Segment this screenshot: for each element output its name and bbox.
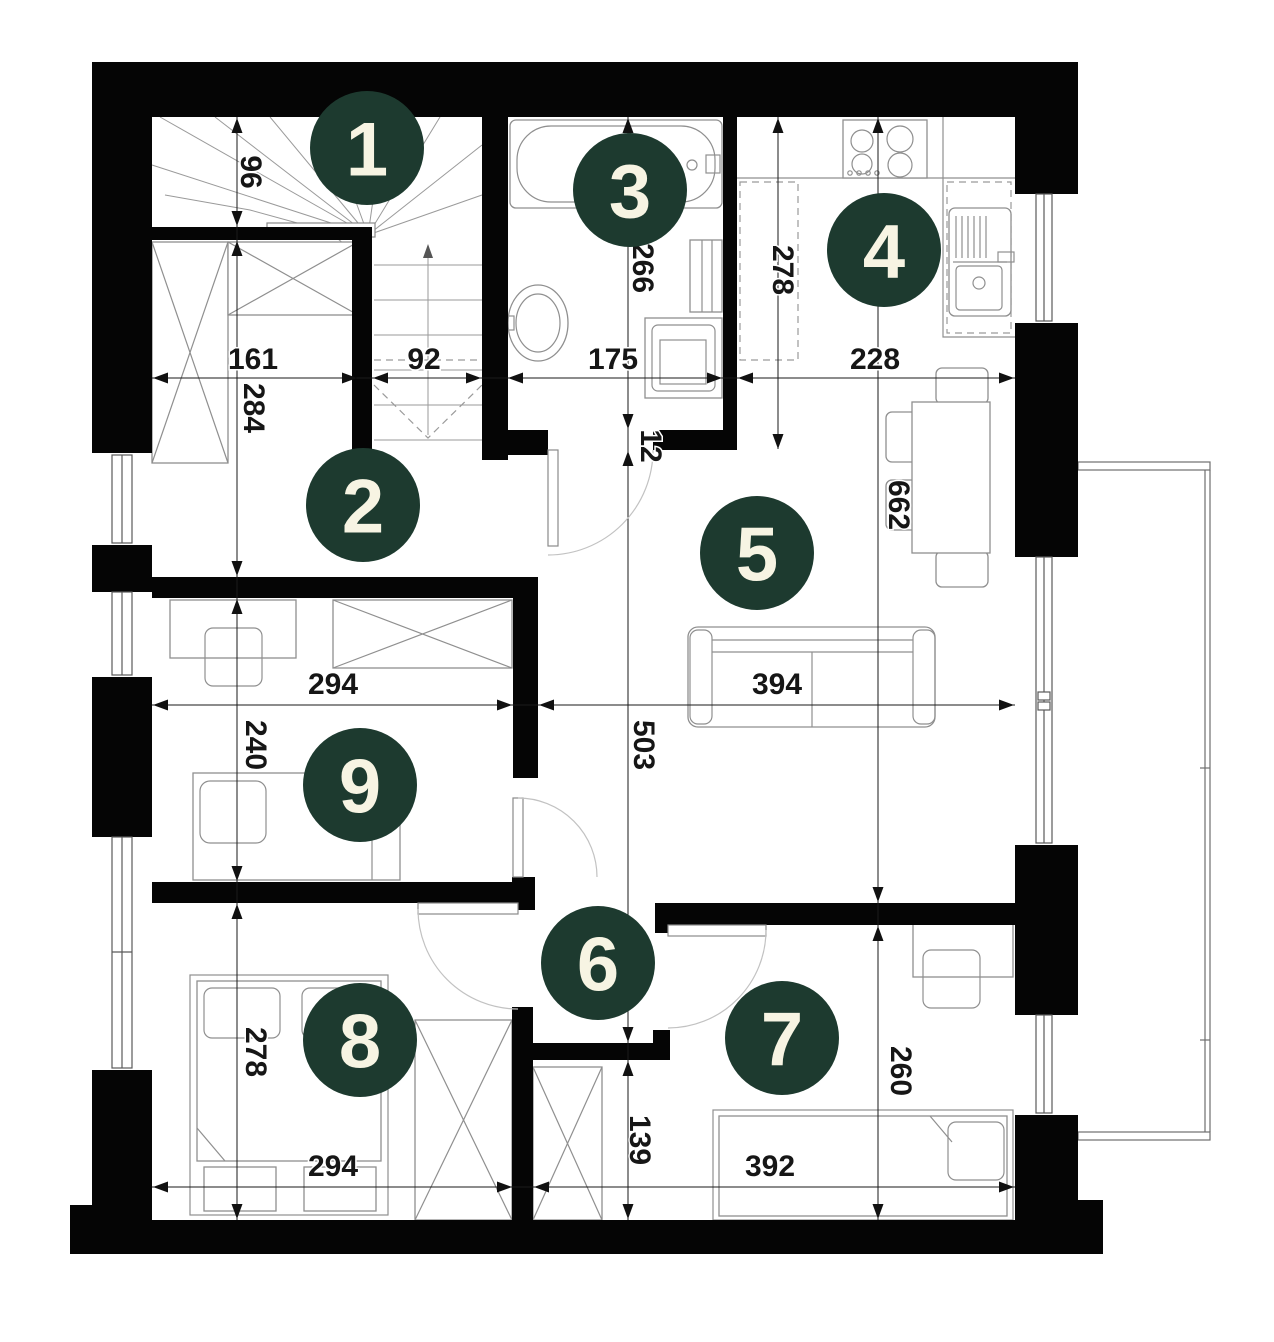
room-marker-6: 6: [541, 906, 655, 1020]
room-marker-number: 5: [736, 512, 778, 597]
dimension-label: 161: [228, 343, 278, 376]
radiator: [690, 240, 722, 312]
dimension-label: 278: [766, 245, 799, 295]
room-marker-number: 1: [346, 107, 388, 192]
dimension-label: 294: [308, 668, 358, 701]
dimension-label: 392: [745, 1150, 795, 1183]
dimension-label: 228: [850, 343, 900, 376]
wardrobe-tall: [152, 242, 228, 463]
room-marker-3: 3: [573, 133, 687, 247]
room-marker-number: 8: [339, 999, 381, 1084]
balcony-door: [1036, 557, 1052, 843]
window-left-1: [112, 455, 132, 543]
dimension-label: 260: [884, 1046, 917, 1096]
wardrobe-hall6: [533, 1067, 602, 1220]
dimension-label: 394: [752, 668, 802, 701]
dimension-label: 12: [634, 429, 667, 462]
room-marker-4: 4: [827, 193, 941, 307]
washing-machine: [645, 318, 722, 398]
window-left-2: [112, 592, 132, 675]
wardrobe-room9: [333, 600, 512, 668]
balcony: [1078, 462, 1210, 1140]
dimension-label: 240: [239, 720, 272, 770]
kitchen-sink: [949, 208, 1014, 316]
dimension-label: 278: [239, 1027, 272, 1077]
floor-plan-canvas: 9616192284266175122782286622943942405032…: [0, 0, 1274, 1342]
dimension-label: 96: [234, 155, 267, 188]
room-marker-number: 2: [342, 464, 384, 549]
wardrobe-wide: [228, 242, 358, 315]
bathroom-door: [548, 450, 653, 555]
sofa: [688, 627, 935, 727]
room-marker-number: 7: [761, 997, 803, 1082]
dining-set: [886, 368, 990, 587]
floor-plan: 9616192284266175122782286622943942405032…: [0, 0, 1274, 1342]
room-marker-number: 6: [577, 922, 619, 1007]
room-marker-number: 9: [339, 744, 381, 829]
room-marker-2: 2: [306, 448, 420, 562]
dimension-label: 175: [588, 343, 638, 376]
dimension-label: 662: [882, 480, 915, 530]
dimension-label: 92: [407, 343, 440, 376]
window-kitchen: [1036, 194, 1052, 321]
dimension-label: 266: [626, 243, 659, 293]
room-marker-7: 7: [725, 981, 839, 1095]
window-room7: [1036, 1015, 1052, 1113]
room-marker-1: 1: [310, 91, 424, 205]
room-marker-5: 5: [700, 496, 814, 610]
window-left-3: [112, 837, 132, 1068]
room-marker-number: 3: [609, 149, 651, 234]
dimension-label: 294: [308, 1150, 358, 1183]
room9-door: [513, 798, 597, 877]
room-marker-number: 4: [863, 209, 905, 294]
room-marker-9: 9: [303, 728, 417, 842]
dimension-label: 284: [237, 383, 270, 433]
room8-door: [418, 903, 518, 1009]
dimension-label: 503: [627, 720, 660, 770]
dimension-label: 139: [623, 1115, 656, 1165]
room-marker-8: 8: [303, 983, 417, 1097]
stove: [843, 120, 927, 178]
desk-room7: [913, 918, 1013, 1008]
washbasin: [502, 285, 568, 361]
